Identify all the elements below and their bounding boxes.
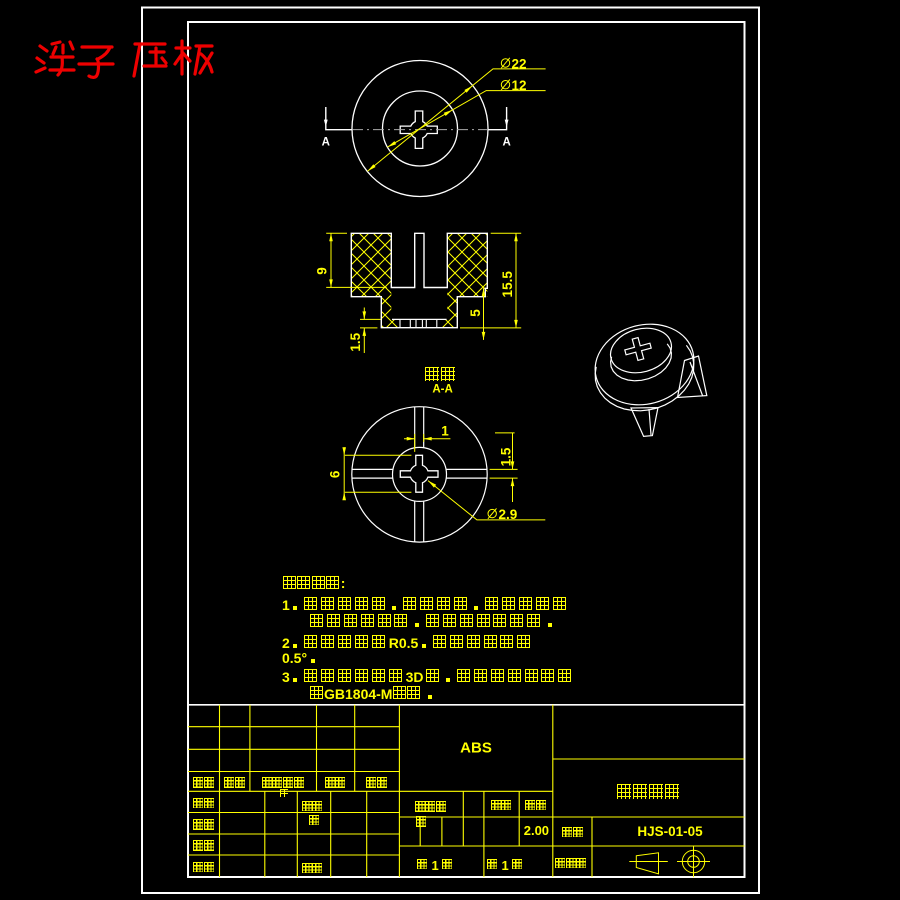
svg-text:2.00: 2.00 [524, 823, 549, 838]
svg-text:12: 12 [512, 78, 527, 93]
svg-text:1.5: 1.5 [348, 332, 363, 351]
svg-text:A: A [502, 137, 510, 149]
svg-text:HJS-01-05: HJS-01-05 [637, 824, 703, 839]
svg-text:ABS: ABS [460, 740, 492, 757]
svg-text:6: 6 [327, 470, 342, 478]
svg-text:9: 9 [315, 267, 330, 275]
svg-text:A: A [322, 137, 330, 149]
svg-text:22: 22 [512, 56, 527, 71]
svg-text:1.5: 1.5 [498, 447, 513, 466]
svg-text:15.5: 15.5 [500, 271, 515, 298]
svg-text:A-A: A-A [432, 384, 452, 396]
svg-text:1: 1 [441, 424, 449, 439]
svg-text:2.9: 2.9 [499, 507, 518, 522]
svg-text:5: 5 [468, 309, 483, 317]
